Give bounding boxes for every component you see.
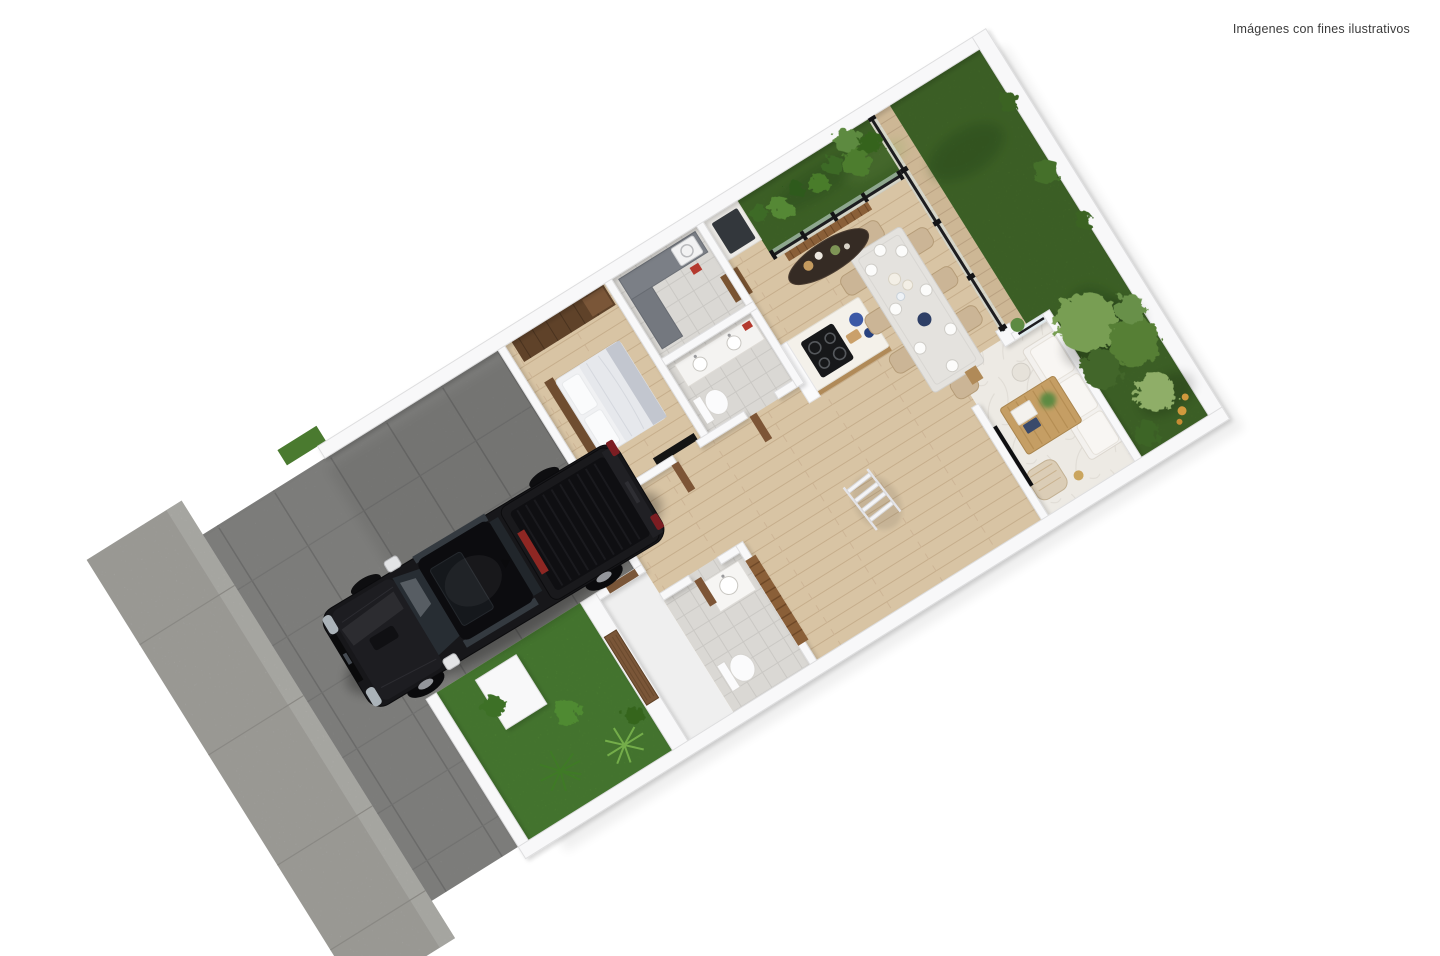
disclaimer-text: Imágenes con fines ilustrativos: [1233, 22, 1410, 36]
render-canvas: Imágenes con fines ilustrativos: [0, 0, 1440, 956]
plan-rotated-group: [87, 2, 1253, 956]
floor-plan-render: [0, 0, 1440, 956]
